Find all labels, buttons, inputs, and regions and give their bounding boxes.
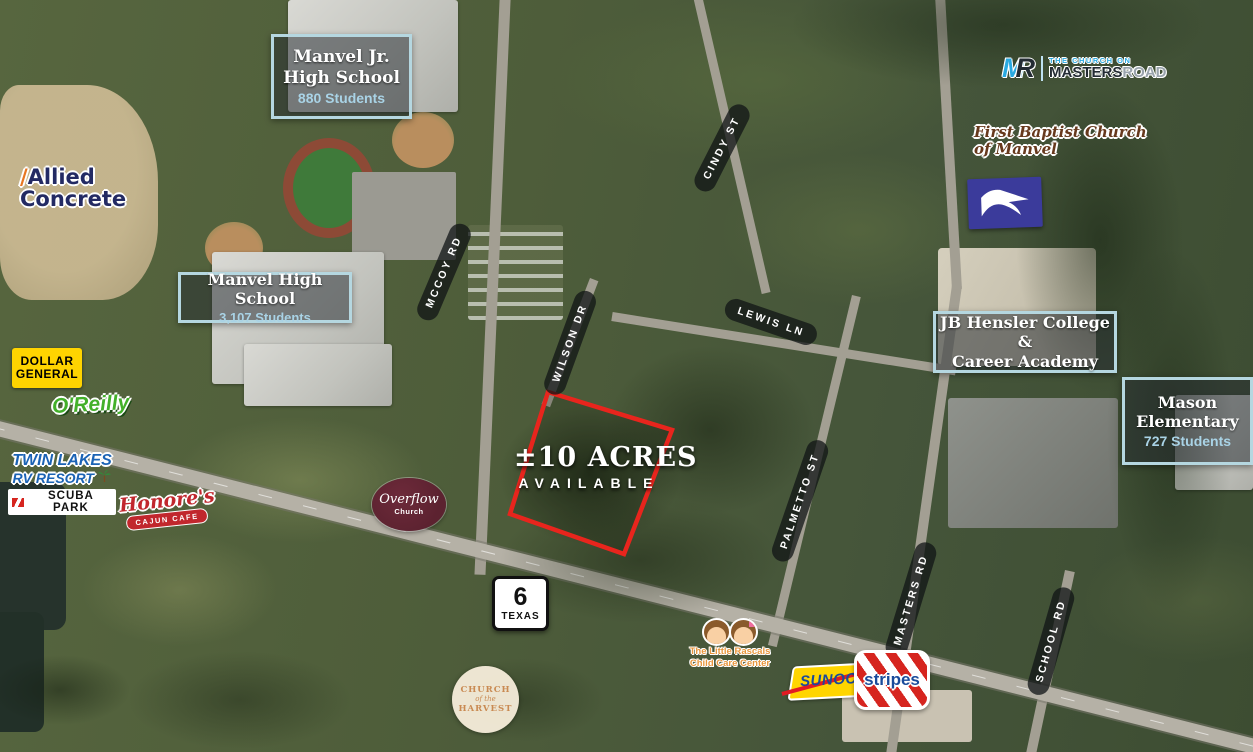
allied-concrete-logo: /Allied Concrete: [20, 166, 126, 210]
acreage-headline: ±10 ACRES AVAILABLE: [514, 442, 664, 491]
boy-face-icon: [704, 620, 729, 644]
logo-text: RV RESORT: [13, 470, 94, 486]
student-count: 3,107 Students: [181, 310, 349, 325]
student-count: 880 Students: [274, 90, 409, 106]
hair-bow-icon: [749, 620, 756, 627]
student-count: 727 Students: [1125, 433, 1250, 449]
acres-text: ±10 ACRES: [514, 442, 664, 473]
first-baptist-church-label: First Baptist Church of Manvel: [974, 124, 1147, 157]
mr-monogram: MR: [1002, 55, 1035, 82]
aerial-map: ±10 ACRES AVAILABLE Manvel Jr. High Scho…: [0, 0, 1253, 752]
info-box-manvel-high: Manvel High School 3,107 Students: [178, 272, 352, 323]
logo-text: MASTERS: [1049, 64, 1122, 81]
info-box-manvel-jr-high: Manvel Jr. High School 880 Students: [271, 34, 412, 119]
twin-lakes-rv-resort-logo: TWIN LAKES RV RESORT SCUBA PARK: [8, 453, 116, 515]
school-name: JB Hensler College &: [940, 313, 1110, 351]
kids-faces-icon: [684, 620, 776, 644]
school-name: Career Academy: [952, 352, 1098, 371]
little-rascals-childcare-logo: The Little Rascals Child Care Center: [684, 620, 776, 670]
logo-text: Child Care Center: [684, 658, 776, 670]
girl-face-icon: [731, 620, 756, 644]
logo-text: stripes: [864, 670, 920, 690]
school-name: High School: [283, 68, 400, 88]
logo-text: of Manvel: [974, 141, 1147, 158]
available-text: AVAILABLE: [514, 475, 664, 491]
logo-text: of the: [475, 695, 496, 703]
school-name: Elementary: [1136, 412, 1239, 431]
school-name: Manvel High School: [181, 270, 349, 308]
logo-text: ROAD: [1122, 64, 1166, 81]
logo-text: Church: [394, 507, 423, 516]
usps-logo: [967, 177, 1043, 230]
oreilly-logo: O'Reilly: [51, 391, 130, 419]
stripes-logo: stripes: [854, 650, 930, 710]
logo-text: Overflow: [379, 493, 439, 506]
dollar-general-logo: DOLLAR GENERAL: [12, 348, 82, 388]
highway-state: TEXAS: [501, 611, 539, 622]
scuba-park-banner: SCUBA PARK: [8, 489, 116, 515]
church-on-masters-road-logo: MR THE CHURCH ON MASTERSROAD: [1002, 55, 1167, 82]
logo-text: SCUBA PARK: [29, 490, 113, 514]
school-name: Mason: [1158, 393, 1217, 412]
highway-number: 6: [514, 585, 528, 610]
church-of-the-harvest-logo: CHURCH of the HARVEST: [452, 666, 519, 733]
logo-text: GENERAL: [16, 368, 78, 381]
allied-accent: /: [20, 165, 28, 189]
logo-text: HARVEST: [459, 704, 513, 714]
tree-cover: [0, 0, 1253, 752]
logo-text: The Little Rascals: [684, 646, 776, 658]
logo-text: TWIN LAKES: [8, 453, 116, 469]
texas-highway-6-shield: 6 TEXAS: [492, 576, 549, 631]
school-name: Manvel Jr.: [293, 47, 390, 67]
usps-eagle-icon: [973, 182, 1036, 224]
info-box-jb-hensler: JB Hensler College & Career Academy: [933, 311, 1117, 373]
palm-tree-icon: [98, 469, 111, 483]
dive-flag-icon: [11, 497, 25, 508]
logo-text: R: [1016, 53, 1036, 83]
logo-text: Concrete: [20, 188, 126, 210]
logo-text: CHURCH: [460, 685, 510, 695]
info-box-mason-elementary: Mason Elementary 727 Students: [1122, 377, 1253, 465]
overflow-church-logo: Overflow Church: [372, 478, 446, 531]
logo-text: First Baptist Church: [974, 124, 1147, 141]
logo-text: Allied: [28, 165, 95, 189]
